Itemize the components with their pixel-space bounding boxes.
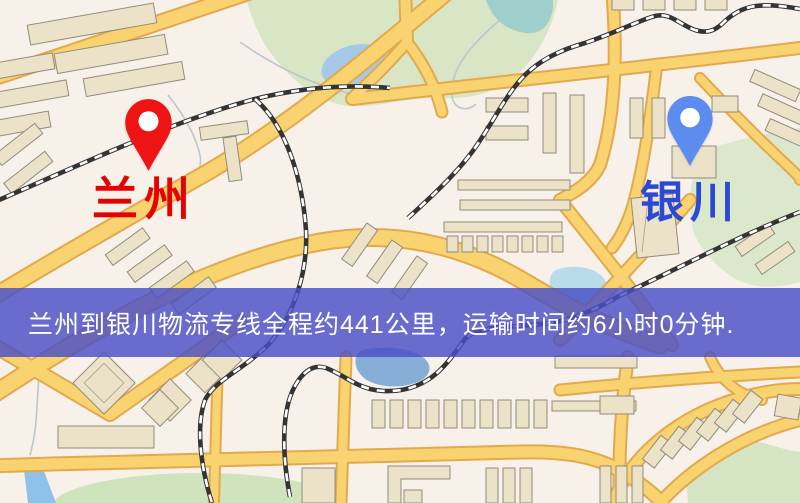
route-info-text: 兰州到银川物流专线全程约441公里，运输时间约6小时0分钟. bbox=[28, 305, 734, 341]
yinchuan-pin-icon bbox=[664, 94, 716, 168]
origin-city-label: 兰州 bbox=[92, 176, 196, 222]
lanzhou-pin-icon bbox=[122, 97, 175, 173]
map-background bbox=[0, 0, 800, 503]
pin-body bbox=[125, 99, 171, 171]
destination-city-label: 银川 bbox=[640, 181, 740, 225]
route-map-screenshot: 兰州 银川 兰州到银川物流专线全程约441公里，运输时间约6小时0分钟. bbox=[0, 0, 800, 503]
pin-body bbox=[667, 96, 712, 166]
route-info-banner: 兰州到银川物流专线全程约441公里，运输时间约6小时0分钟. bbox=[0, 288, 800, 357]
